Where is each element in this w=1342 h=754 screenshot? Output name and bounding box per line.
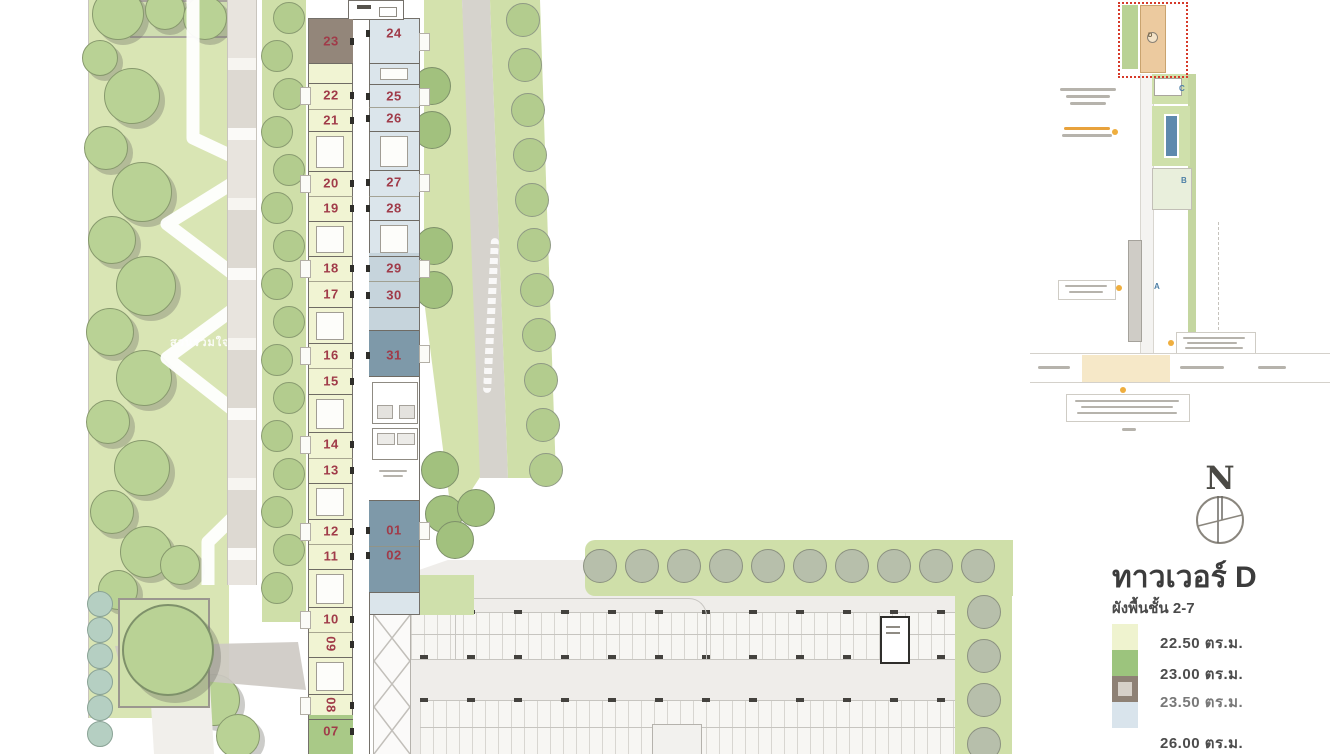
column-mark (608, 698, 616, 702)
unit-number-26: 26 (386, 112, 401, 125)
column-mark (655, 698, 663, 702)
door-mark (350, 641, 354, 648)
tree-icon (520, 273, 554, 307)
wall-line (309, 458, 353, 459)
wall-line (309, 569, 353, 570)
column-mark (937, 610, 945, 614)
door-mark (350, 180, 354, 187)
door-mark (350, 728, 354, 735)
unit-number-16: 16 (323, 349, 338, 362)
tree-icon (508, 48, 542, 82)
tree-icon (961, 549, 995, 583)
tree-icon (751, 549, 785, 583)
tree-icon (87, 721, 113, 747)
wall-line (369, 307, 419, 308)
legend-swatch (1112, 676, 1138, 702)
door-mark (366, 205, 370, 212)
tree-icon (421, 451, 459, 489)
balcony (419, 88, 430, 106)
tree-icon (967, 683, 1001, 717)
tree-icon (625, 549, 659, 583)
door-mark (366, 527, 370, 534)
green-patch-southeast (412, 575, 474, 615)
column-mark (420, 698, 428, 702)
column-mark (796, 610, 804, 614)
tree-icon (919, 549, 953, 583)
wall-line (309, 256, 353, 257)
unit-number-18: 18 (323, 262, 338, 275)
east-landscape (0, 0, 600, 560)
door-mark (350, 378, 354, 385)
column-mark (467, 698, 475, 702)
wall-line (309, 281, 353, 282)
balcony (419, 260, 430, 278)
tree-icon (87, 643, 113, 669)
unit-number-09: 09 (325, 636, 338, 651)
legend-swatch (1112, 702, 1138, 728)
bathroom-room (316, 312, 344, 340)
unit-number-21: 21 (323, 114, 338, 127)
wall-line (369, 63, 419, 64)
door-mark (366, 30, 370, 37)
unit-number-10: 10 (323, 613, 338, 626)
corridor (352, 18, 370, 754)
column-mark (420, 655, 428, 659)
wall-line (309, 109, 353, 110)
wall-line (309, 307, 353, 308)
parking-structure-small (652, 724, 702, 754)
balcony (300, 523, 311, 541)
unit-number-17: 17 (323, 288, 338, 301)
tree-icon (436, 521, 474, 559)
wall-line (309, 719, 353, 720)
wall-line (309, 343, 353, 344)
door-mark (350, 38, 354, 45)
unit-number-27: 27 (386, 176, 401, 189)
kp-label-b: B (1181, 176, 1187, 185)
tree-icon (526, 408, 560, 442)
bathroom-room (316, 488, 344, 516)
wall-line (369, 131, 419, 132)
tree-icon (877, 549, 911, 583)
wall-line (309, 83, 353, 84)
wall-line (309, 544, 353, 545)
kp-road-line (1030, 382, 1330, 383)
sheet-subtitle: ผังพื้นชั้น 2-7 (1112, 596, 1332, 620)
tree-icon (261, 572, 293, 604)
door-mark (350, 528, 354, 535)
column-mark (749, 610, 757, 614)
unit-number-14: 14 (323, 438, 338, 451)
wall-line (309, 694, 353, 695)
door-mark (366, 552, 370, 559)
column-mark (702, 698, 710, 702)
unit-number-20: 20 (323, 177, 338, 190)
legend: 22.50 ตร.ม.23.00 ตร.ม.23.50 ตร.ม.26.00 ต… (1112, 624, 1332, 754)
title-block: ทาวเวอร์ D ผังพื้นชั้น 2-7 (1112, 562, 1332, 620)
legend-label: 23.50 ตร.ม. (1160, 690, 1243, 714)
balcony (419, 174, 430, 192)
door-mark (366, 292, 370, 299)
column-mark (937, 698, 945, 702)
unit-number-15: 15 (323, 375, 338, 388)
unit-number-13: 13 (323, 464, 338, 477)
tree-icon (506, 3, 540, 37)
tree-icon (511, 93, 545, 127)
unit-number-23: 23 (323, 35, 338, 48)
tree-icon (513, 138, 547, 172)
door-mark (350, 553, 354, 560)
tree-icon (457, 489, 495, 527)
unit-number-02: 02 (386, 549, 401, 562)
column-mark (843, 610, 851, 614)
wall-line (369, 84, 419, 85)
bathroom-room (316, 662, 344, 691)
wall-line (309, 131, 353, 132)
door-mark (350, 467, 354, 474)
wall-line (369, 592, 419, 593)
stair-mark (886, 626, 900, 628)
bathroom-room (380, 225, 408, 253)
balcony (300, 611, 311, 629)
tree-icon (517, 228, 551, 262)
key-plan: D C B A (1030, 0, 1330, 450)
big-tree-icon (122, 604, 214, 696)
tree-icon (529, 453, 563, 487)
kp-label-a: A (1154, 282, 1160, 291)
door-mark (350, 117, 354, 124)
wall-line (369, 500, 419, 501)
kp-bldg-b (1152, 168, 1192, 210)
unit-number-22: 22 (323, 89, 338, 102)
door-mark (350, 205, 354, 212)
tree-icon (87, 669, 113, 695)
column-mark (796, 655, 804, 659)
kp-bldg-c (1154, 78, 1182, 96)
door-mark (350, 702, 354, 709)
tree-icon (87, 591, 113, 617)
kp-bldg-a (1128, 240, 1142, 342)
tree-icon (667, 549, 701, 583)
legend-label: 23.00 ตร.ม. (1160, 662, 1243, 686)
column-mark (796, 698, 804, 702)
legend-swatch (1112, 624, 1138, 650)
wall-line (309, 368, 353, 369)
unit-number-01: 01 (386, 524, 401, 537)
wall-line (369, 107, 419, 108)
column-mark (749, 655, 757, 659)
bathroom-room (316, 226, 344, 253)
north-compass: N (1180, 462, 1260, 554)
balcony (300, 175, 311, 193)
door-mark (366, 265, 370, 272)
legend-label: 26.00 ตร.ม. (1160, 731, 1243, 754)
tree-icon (967, 595, 1001, 629)
balcony (419, 522, 430, 540)
column-mark (890, 610, 898, 614)
stair-mark (886, 632, 900, 634)
wall-line (369, 376, 419, 377)
wall-line (309, 171, 353, 172)
tree-icon (709, 549, 743, 583)
wall-line (309, 196, 353, 197)
wall-line (309, 483, 353, 484)
wall-line (309, 657, 353, 658)
wall-line (369, 196, 419, 197)
roof-structure (348, 0, 404, 20)
wall-line (369, 256, 419, 257)
drive-aisle-curve (455, 598, 707, 659)
column-mark (514, 698, 522, 702)
bathroom-room (316, 574, 344, 604)
wall-line (369, 170, 419, 171)
unit-number-12: 12 (323, 525, 338, 538)
wall-line (369, 330, 419, 331)
unit-number-29: 29 (386, 262, 401, 275)
legend-swatch (1112, 650, 1138, 676)
tree-icon (515, 183, 549, 217)
service-core (369, 376, 419, 500)
parking-stair-room (880, 616, 910, 664)
wall-line (369, 281, 419, 282)
door-mark (366, 179, 370, 186)
kp-green-d (1122, 5, 1138, 69)
column-mark (890, 698, 898, 702)
tree-icon (793, 549, 827, 583)
door-mark (350, 291, 354, 298)
tree-icon (87, 617, 113, 643)
wall-line (309, 607, 353, 608)
column-mark (843, 655, 851, 659)
door-mark (350, 441, 354, 448)
wall-line (309, 63, 353, 64)
wall-line (309, 432, 353, 433)
tree-icon (967, 727, 1001, 754)
balcony (300, 87, 311, 105)
unit-number-11: 11 (324, 550, 339, 563)
wall-line (309, 394, 353, 395)
bathroom-room (316, 399, 344, 429)
bathroom-room (380, 68, 408, 80)
bathroom-room (316, 136, 344, 168)
tree-icon (522, 318, 556, 352)
door-mark (350, 352, 354, 359)
balcony (419, 33, 430, 51)
wall-line (309, 519, 353, 520)
balcony (419, 345, 430, 363)
tree-icon (524, 363, 558, 397)
kp-label-c: C (1179, 84, 1185, 93)
unit-number-08: 08 (325, 697, 338, 712)
unit-number-31: 31 (386, 349, 401, 362)
column-mark (749, 698, 757, 702)
wall-line (309, 632, 353, 633)
tree-icon (835, 549, 869, 583)
unit-number-19: 19 (323, 202, 338, 215)
kp-pool (1164, 114, 1179, 158)
unit-number-07: 07 (323, 725, 338, 738)
balcony (300, 697, 311, 715)
kp-road-block (1082, 355, 1170, 382)
door-mark (366, 93, 370, 100)
car-ramp (373, 615, 411, 754)
sheet-title: ทาวเวอร์ D (1112, 562, 1332, 594)
balcony (300, 436, 311, 454)
door-mark (350, 265, 354, 272)
tree-icon (583, 549, 617, 583)
wall-line (369, 220, 419, 221)
kp-dashed-line (1218, 222, 1220, 330)
door-mark (366, 115, 370, 122)
balcony (300, 260, 311, 278)
column-mark (937, 655, 945, 659)
unit-number-24: 24 (386, 27, 401, 40)
tree-icon (967, 639, 1001, 673)
unit-number-28: 28 (386, 202, 401, 215)
column-mark (843, 698, 851, 702)
floor-plan-sheet: สวนรวมใจ (0, 0, 1342, 754)
kp-road-line (1030, 353, 1330, 354)
column-mark (561, 698, 569, 702)
wall-line (309, 221, 353, 222)
kp-label-d: D (1148, 33, 1152, 39)
unit-number-25: 25 (386, 90, 401, 103)
tree-icon (87, 695, 113, 721)
door-mark (366, 352, 370, 359)
legend-label: 22.50 ตร.ม. (1160, 631, 1243, 655)
bathroom-room (380, 136, 408, 167)
door-mark (350, 616, 354, 623)
door-mark (350, 92, 354, 99)
unit-number-30: 30 (386, 289, 401, 302)
balcony (300, 347, 311, 365)
